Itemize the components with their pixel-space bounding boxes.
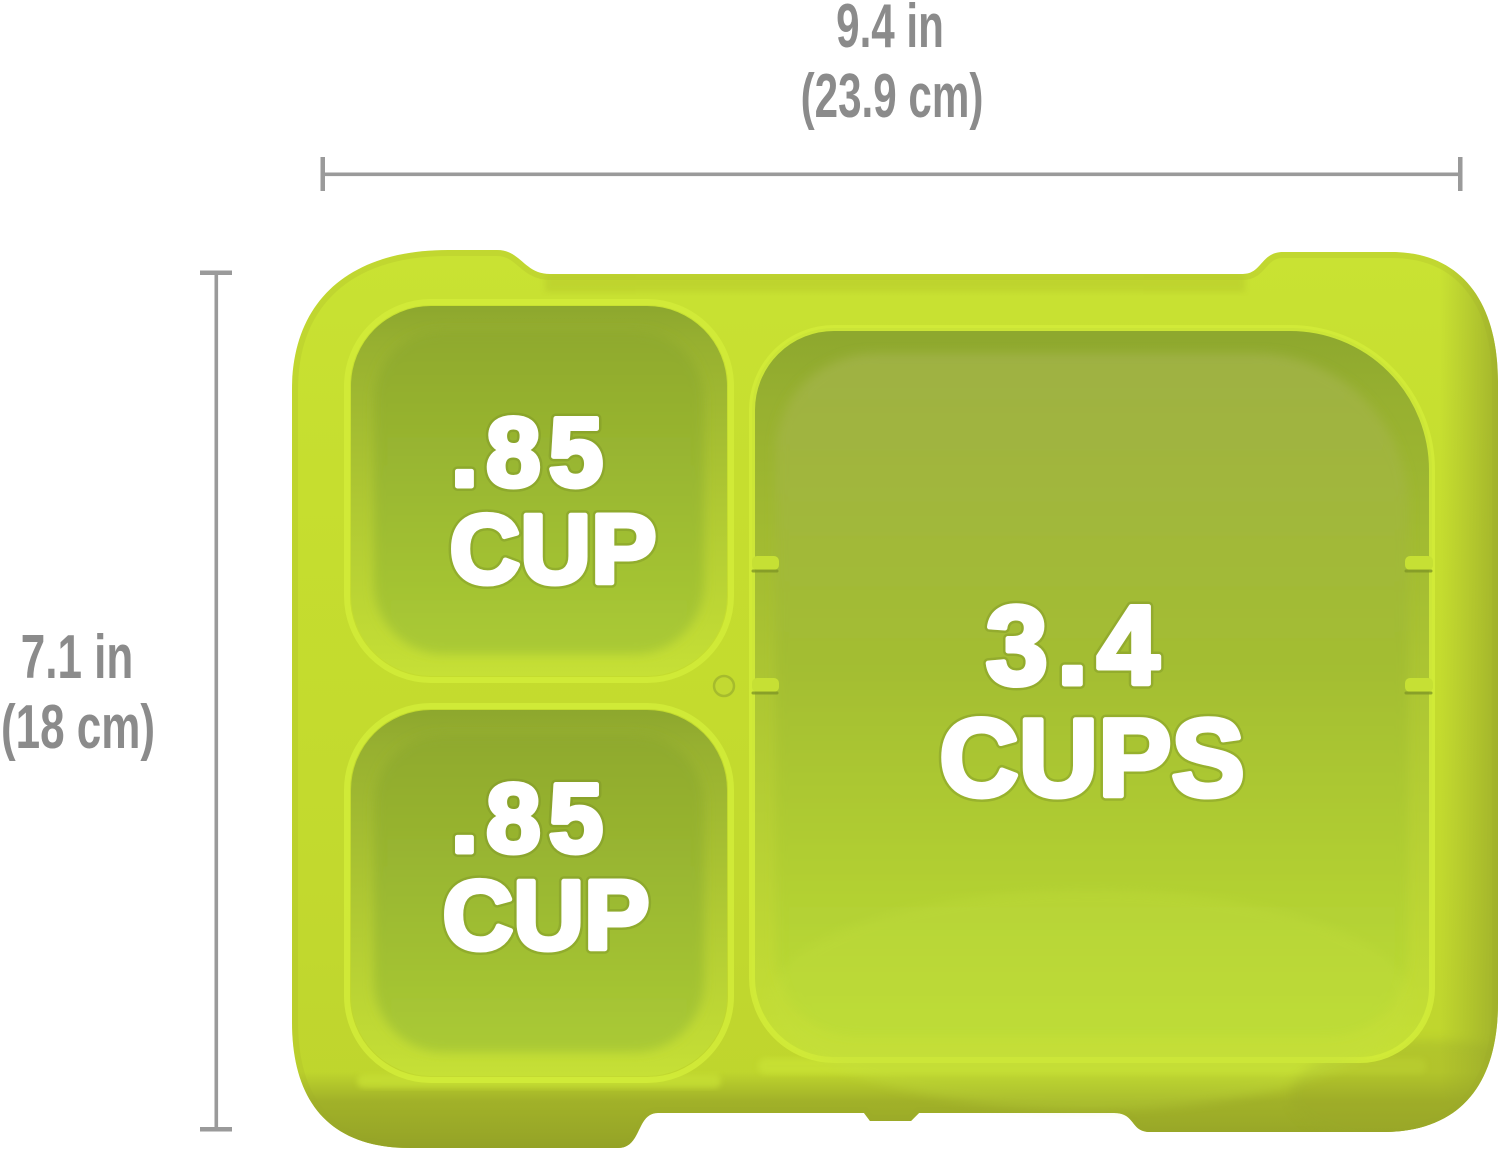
svg-text:(23.9 cm): (23.9 cm) (801, 62, 984, 131)
svg-text:CUP: CUP (443, 860, 650, 970)
svg-text:CUP: CUP (450, 494, 657, 604)
svg-text:(18 cm): (18 cm) (1, 693, 155, 762)
svg-text:9.4 in: 9.4 in (836, 0, 944, 61)
svg-text:.85: .85 (451, 397, 611, 507)
svg-text:3.4: 3.4 (986, 583, 1169, 708)
svg-text:.85: .85 (451, 763, 611, 873)
svg-text:CUPS: CUPS (939, 697, 1245, 820)
svg-text:7.1 in: 7.1 in (21, 623, 134, 692)
